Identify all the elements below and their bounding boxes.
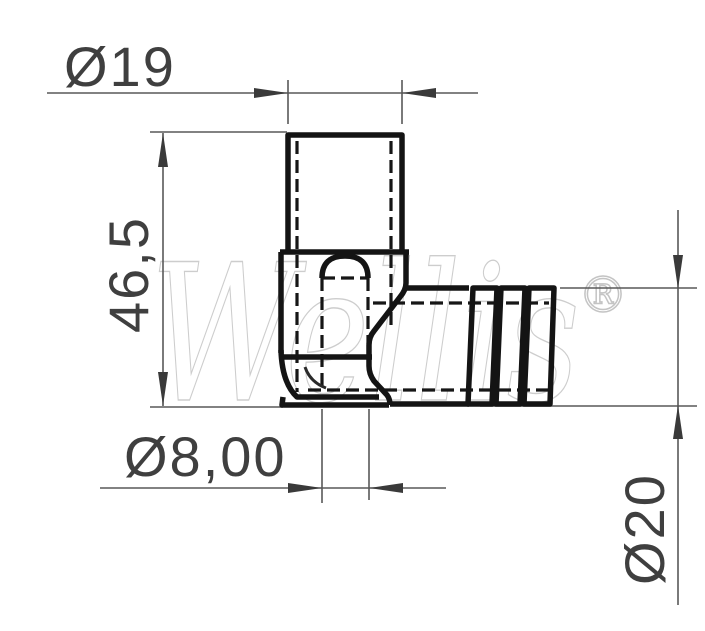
arrow-down-icon bbox=[673, 255, 683, 289]
arrow-right-icon bbox=[254, 88, 288, 98]
dimension-label-barb-diameter: Ø20 bbox=[613, 473, 676, 585]
watermark: Wellis ® bbox=[150, 224, 628, 445]
dimension-label-top-diameter: Ø19 bbox=[64, 35, 176, 98]
technical-drawing-canvas: Wellis ® bbox=[0, 0, 705, 631]
arrow-left-icon bbox=[369, 483, 403, 493]
arrow-up-icon bbox=[158, 133, 168, 167]
registered-trademark-icon: ® bbox=[578, 266, 628, 324]
arrow-up-icon bbox=[673, 405, 683, 439]
dimension-label-bore-diameter: Ø8,00 bbox=[124, 425, 287, 488]
arrow-left-icon bbox=[402, 88, 436, 98]
elbow-fitting-drawing: Wellis ® bbox=[0, 0, 705, 631]
dimension-label-height: 46,5 bbox=[97, 216, 160, 333]
watermark-text: Wellis bbox=[150, 224, 580, 445]
arrow-right-icon bbox=[288, 483, 322, 493]
